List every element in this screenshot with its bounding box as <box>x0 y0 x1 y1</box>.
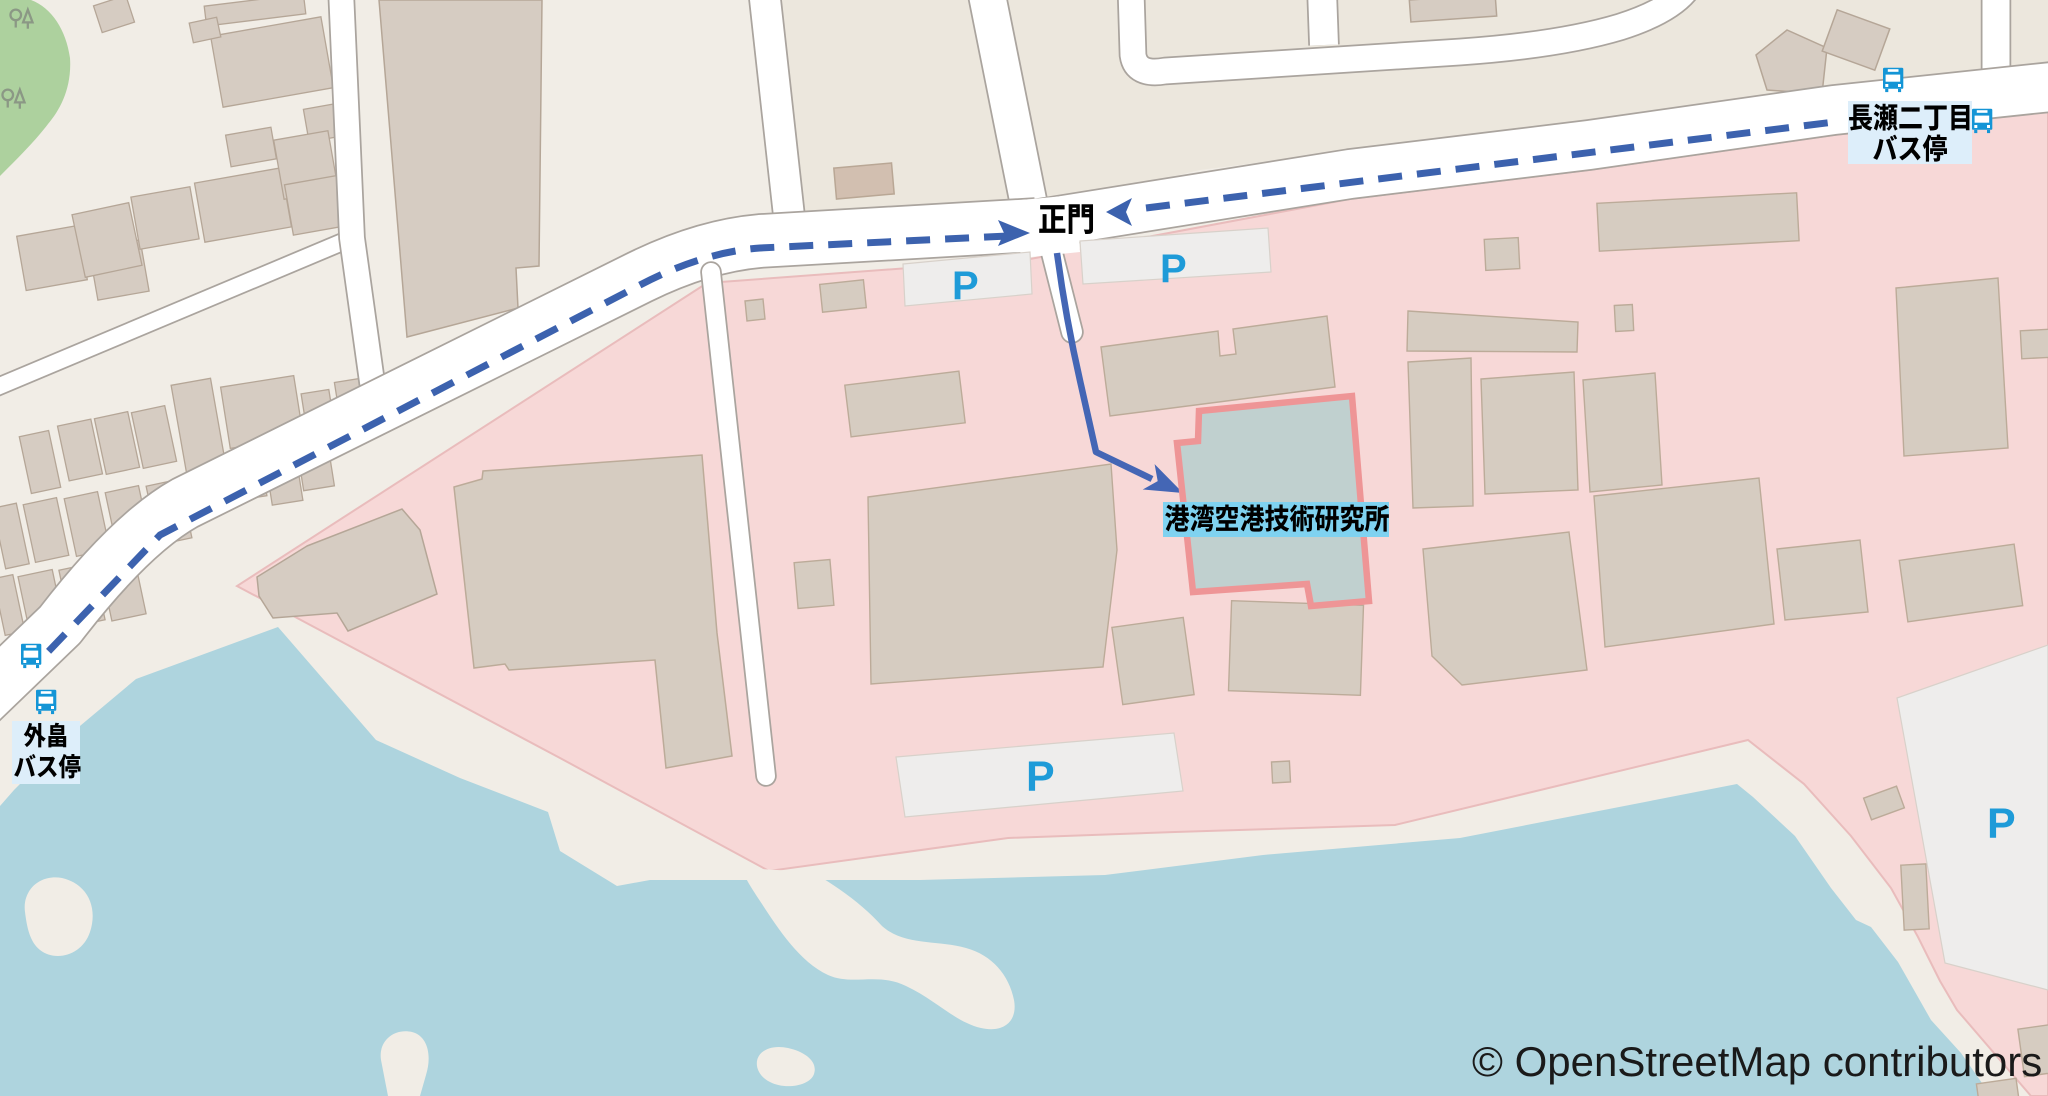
svg-text:P: P <box>1987 800 2016 848</box>
svg-text:© OpenStreetMap contributors: © OpenStreetMap contributors <box>1472 1038 2042 1085</box>
svg-text:P: P <box>1026 753 1055 801</box>
svg-text:P: P <box>1160 247 1187 291</box>
svg-text:P: P <box>952 264 979 308</box>
